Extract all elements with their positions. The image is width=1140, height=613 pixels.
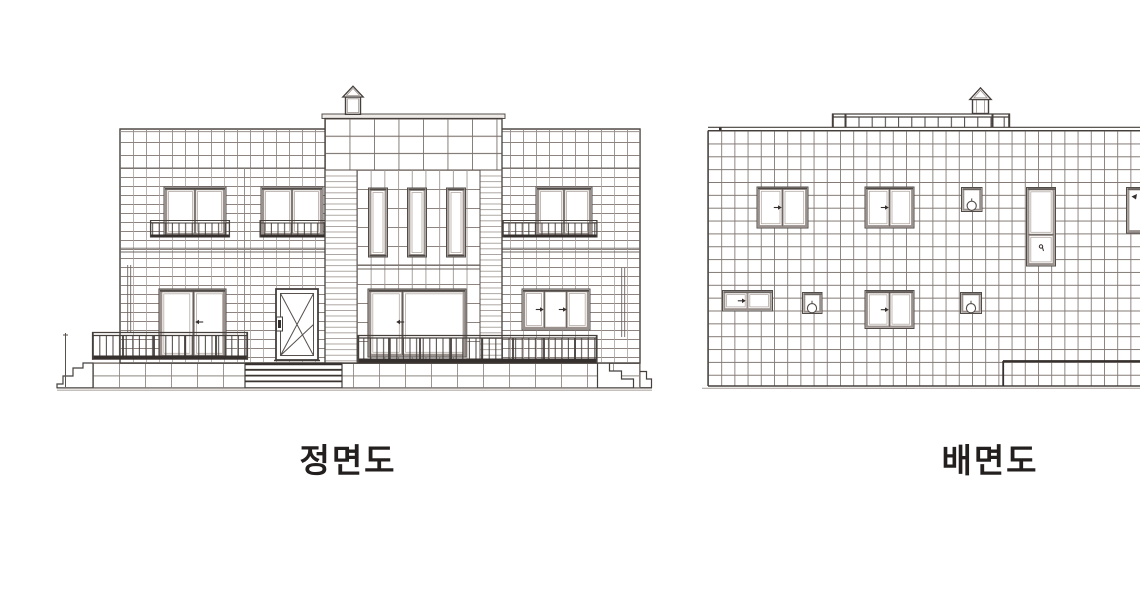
front-juliet-railing-1 (150, 220, 230, 238)
front-entrance-steps (245, 363, 342, 388)
rear-upper-window-2 (865, 187, 914, 228)
rear-vent-window-lower-1 (803, 293, 823, 314)
rear-elevation (702, 88, 1140, 389)
front-juliet-railing-2 (260, 220, 327, 238)
front-tower-window-2 (408, 188, 427, 257)
front-elevation (57, 86, 652, 390)
rear-parapet-cap (708, 127, 1140, 130)
door-handle (278, 320, 281, 328)
front-elevation-label: 정면도 (299, 442, 396, 479)
rear-vent-window-lower-2 (961, 293, 982, 314)
rear-lower-window-1 (723, 291, 773, 312)
front-base-platform (93, 363, 640, 388)
front-entrance-door (274, 289, 320, 361)
rear-upper-window-1 (757, 187, 808, 228)
rear-roof-deck-railing (832, 114, 1010, 128)
front-sliding-window-right (522, 289, 590, 330)
front-balcony-railing-center-right (358, 335, 598, 363)
rear-chimney (970, 88, 991, 114)
front-tower-window-3 (447, 188, 466, 257)
rear-stair-window (1027, 188, 1056, 267)
front-balcony-railing-left (92, 332, 248, 360)
rear-elevation-label: 배면도 (941, 442, 1038, 479)
rear-partial-window-right (1127, 188, 1140, 234)
rear-facade (702, 127, 1140, 388)
front-chimney (343, 86, 363, 114)
front-left-steps (57, 333, 93, 388)
front-tower-window-1 (369, 188, 388, 257)
architectural-elevations: 정면도 배면도 (0, 0, 1140, 613)
rear-lower-window-2 (865, 291, 914, 329)
rear-vent-window-upper (962, 188, 983, 212)
front-juliet-railing-3 (503, 220, 598, 238)
